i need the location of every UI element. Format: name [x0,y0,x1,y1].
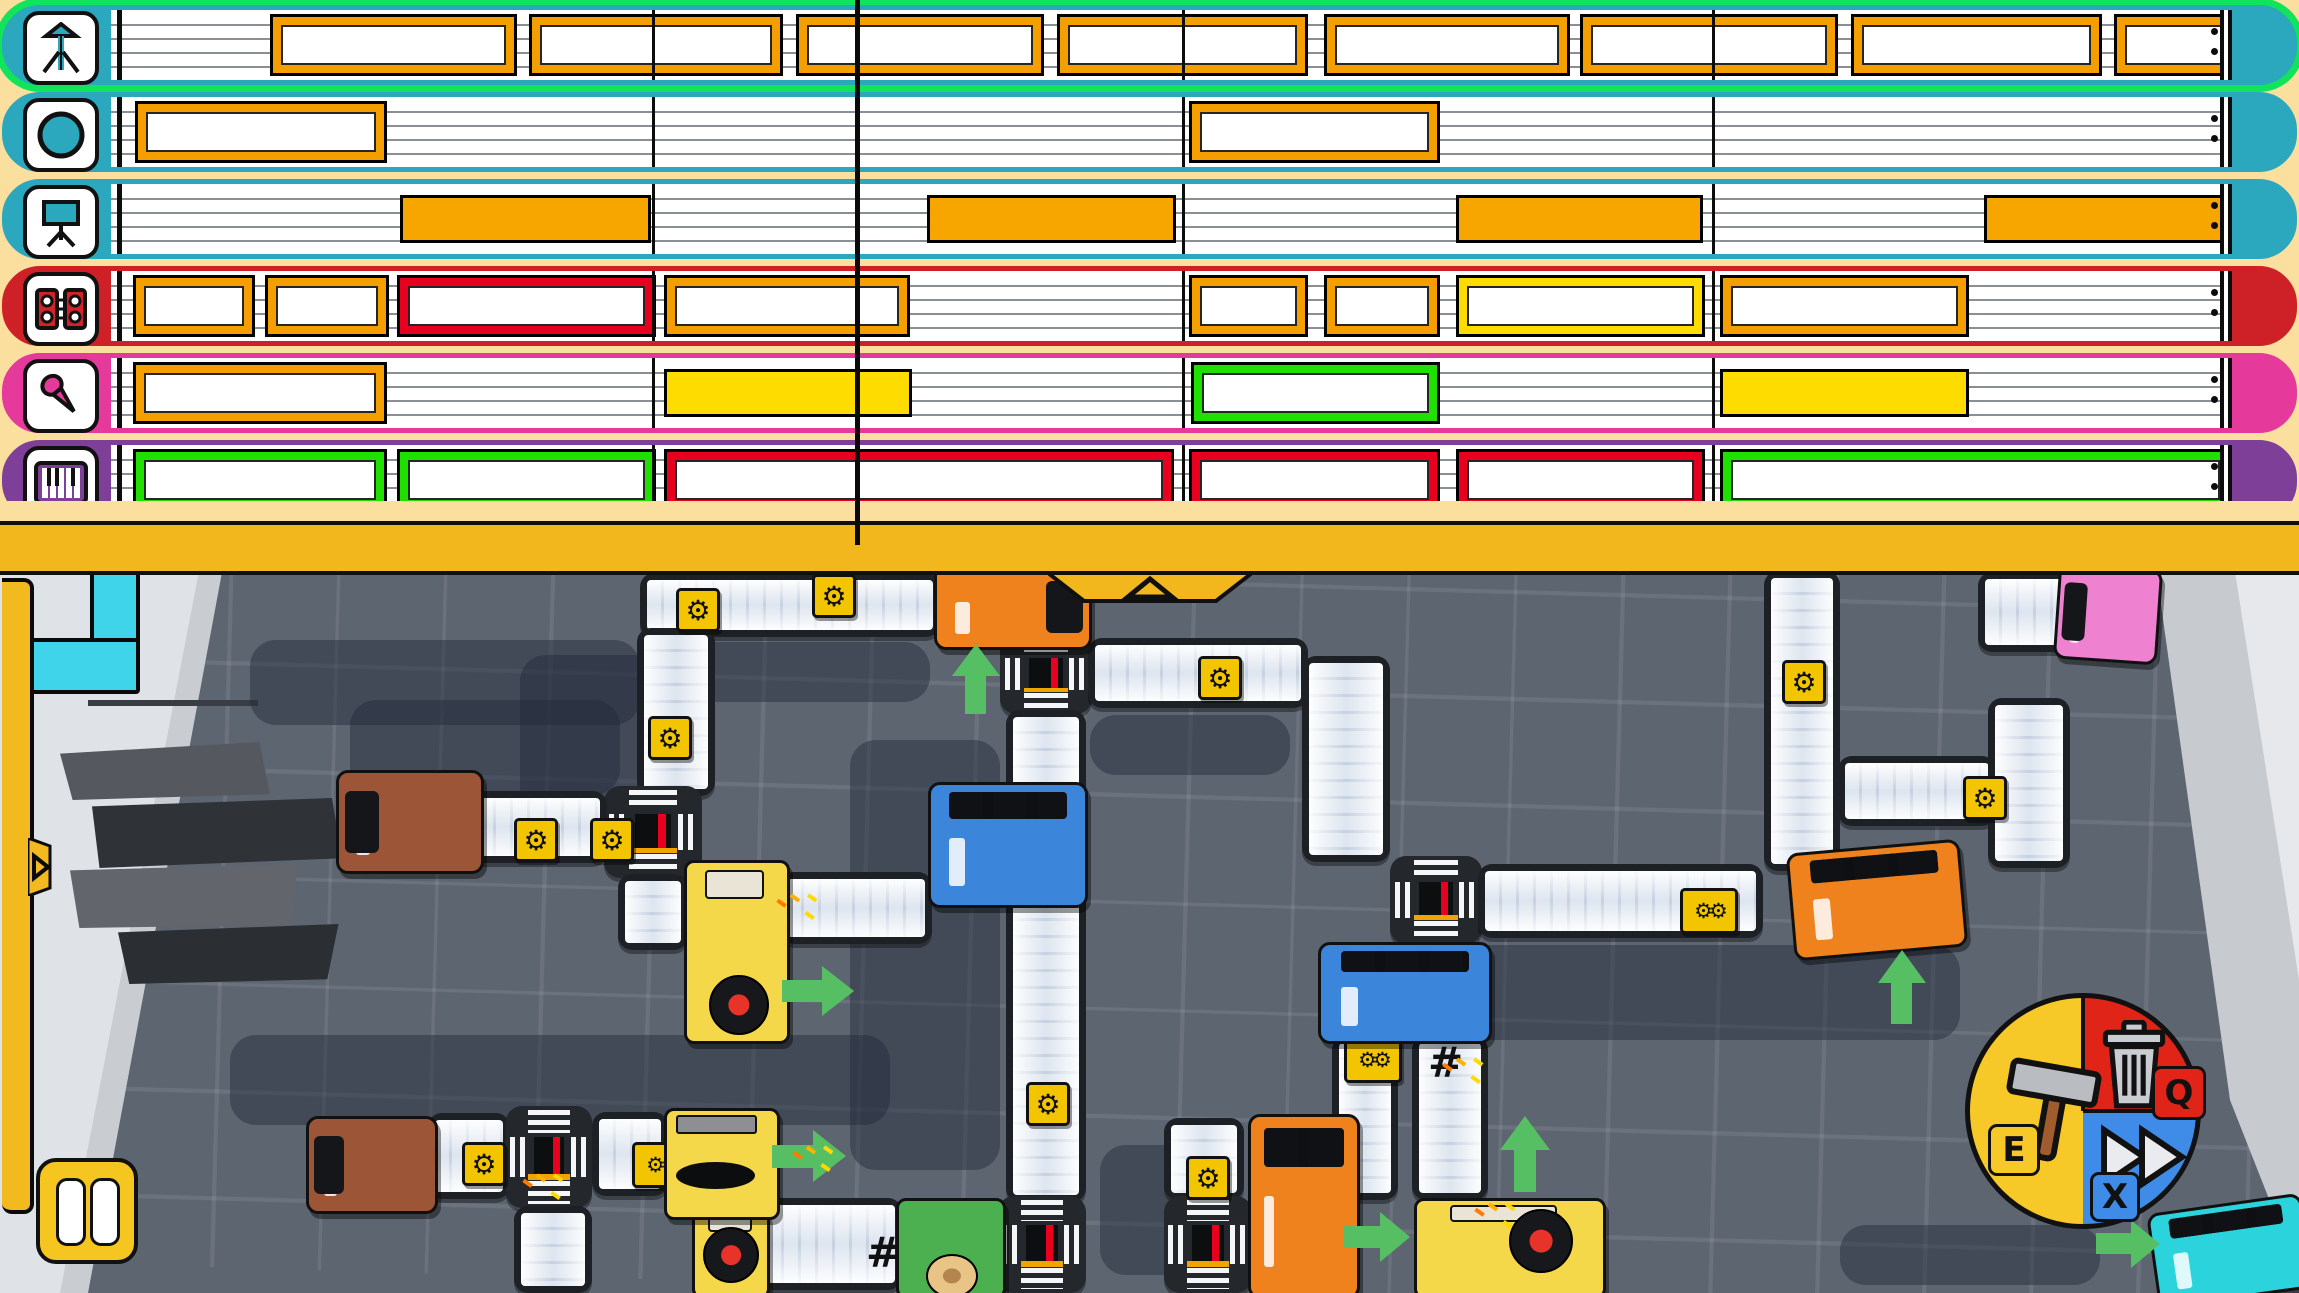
panel-gap [0,501,2299,521]
gear-icon: ⚙ [590,818,634,862]
crossing-stripes [1230,1225,1248,1264]
crossing-red-mark [1046,1225,1053,1264]
conveyor-belt[interactable] [1302,656,1390,862]
turntable-machine[interactable] [684,860,790,1044]
press-disc-icon [926,1254,978,1293]
note-block[interactable] [265,275,389,337]
note-block-inner [1335,25,1559,65]
note-block-inner [1335,286,1429,326]
machine-hopper [705,870,764,899]
key-badge-build: E [1988,1124,2040,1176]
note-block-inner [408,286,645,326]
brown-truck[interactable] [306,1116,438,1214]
direction-arrow-right-icon [782,966,854,1016]
truck-cab [345,791,379,854]
track-instrument-button[interactable] [23,11,99,85]
crossing-stripes [1187,1200,1229,1221]
crossing-red-mark [1212,1225,1219,1264]
track-row-stand[interactable] [2,179,2297,259]
crossing-yellow-mark [1021,1261,1063,1267]
stand-icon [36,196,86,248]
record-disc-icon [703,1227,759,1283]
track-end-cap [2232,358,2292,428]
note-block[interactable] [133,362,387,424]
crossing-red-mark [1441,882,1448,917]
belt-surface [644,635,708,789]
direction-arrow-up-icon [1500,1116,1550,1192]
rock-slab [92,798,342,868]
blue-truck[interactable] [928,782,1088,908]
note-block-inner [1862,25,2091,65]
crossing-stripes [629,854,676,874]
gear-icon: ⚙ [1782,660,1826,704]
key-badge-delete: Q [2152,1066,2206,1120]
track-end-cap [2232,184,2292,254]
game-screen: ⚙⚙⚙⚙⚙⚙⚙⚙⚙⚙⚙⚙⚙⚙⚙⚙⚙## [0,0,2299,1293]
direction-arrow-up-icon [952,644,1000,714]
keys-icon [34,460,88,506]
note-block[interactable] [135,101,387,163]
staff-line [111,139,2232,141]
repeat-dot [2211,115,2218,122]
note-block[interactable] [1984,195,2231,243]
note-block[interactable] [1456,195,1703,243]
measure-line [1712,184,1715,254]
note-block[interactable] [664,275,910,337]
crossing-stripes [1024,693,1068,711]
end-bar-lines [2220,184,2232,254]
note-block[interactable] [529,14,783,76]
turntable-machine[interactable] [692,1210,770,1293]
theremin-icon [36,22,86,74]
note-block[interactable] [1720,275,1969,337]
belt-surface [1771,578,1833,864]
direction-arrow-up-icon [1878,950,1926,1024]
crossing-stripes [510,1137,527,1178]
staff-line [111,125,2232,127]
note-block[interactable] [1189,101,1440,163]
gear-icon: ⚙ [514,818,558,862]
record-disc-icon [1509,1209,1573,1273]
note-block[interactable] [1189,275,1308,337]
belt-surface [787,879,925,937]
gear-icon: ⚙ [462,1142,506,1186]
note-block[interactable] [1456,275,1705,337]
gear-icon: ⚙ [1198,656,1242,700]
truck-stripe [2173,1251,2193,1289]
rock-slab [118,924,343,984]
note-block-inner [1200,460,1429,500]
track-row-mic[interactable] [2,353,2297,433]
speakers-icon [34,284,88,334]
measure-line [1712,271,1715,341]
note-block-inner [1200,112,1429,152]
measure-line [1182,358,1185,428]
belt-crossing[interactable] [506,1106,592,1208]
note-block[interactable] [1191,362,1440,424]
track-lane[interactable] [111,271,2232,341]
rock-slab [60,742,270,800]
end-bar-lines [2220,10,2232,80]
measure-line [652,358,655,428]
gear-icon: ⚙ [1186,1156,1230,1200]
gear-icon: ⚙ [676,588,720,632]
repeat-dot [2211,135,2218,142]
crossing-stripes [1005,658,1023,690]
brown-truck[interactable] [336,770,484,874]
note-block-inner [807,25,1033,65]
track-lane[interactable] [111,184,2232,254]
conveyor-belt[interactable] [1764,571,1840,871]
repeat-dot [2211,222,2218,229]
gear-icon: ⚙ [812,574,856,618]
truck-windows [1264,1128,1345,1167]
crossing-stripes [571,1137,588,1178]
note-block-inner [1731,286,1958,326]
gramophone-machine[interactable] [664,1108,780,1220]
note-block-inner [1591,25,1827,65]
orange-truck[interactable] [1248,1114,1360,1293]
measure-line [652,10,655,80]
track-instrument-button[interactable] [23,272,99,346]
repeat-dot [2211,289,2218,296]
note-block-inner [1467,286,1694,326]
belt-surface [521,1213,585,1286]
note-block[interactable] [927,195,1176,243]
track-instrument-button[interactable] [23,359,99,433]
sequencer-bottom-bar [0,521,2299,575]
truck-windows [1341,951,1469,972]
crossing-stripes [1414,860,1458,879]
repeat-dot [2211,396,2218,403]
note-block-inner [281,25,506,65]
double-gear-icon: ⚙⚙ [1680,888,1738,934]
track-row-theremin[interactable] [2,5,2297,85]
repeat-dot [2211,376,2218,383]
conveyor-belt[interactable] [780,872,932,944]
lane-start-line [117,97,122,167]
crossing-stripes [1021,1268,1063,1289]
measure-line [1182,184,1185,254]
belt-crossing[interactable] [1390,856,1482,944]
track-end-cap [2232,97,2292,167]
note-block[interactable] [1720,369,1969,417]
staff-line [111,153,2232,155]
note-block[interactable] [1324,275,1440,337]
end-bar-lines [2220,271,2232,341]
repeat-dot [2211,483,2218,490]
turntable-machine[interactable] [1414,1198,1606,1293]
repeat-dot [2211,309,2218,316]
truck-windows [949,792,1066,818]
note-block-inner [540,25,772,65]
track-row-pad[interactable] [2,92,2297,172]
note-block[interactable] [2114,14,2232,76]
truck-windows [2168,1204,2284,1239]
truck-stripe [1813,898,1833,940]
belt-surface [625,881,681,943]
staff-line [111,111,2232,113]
measure-line [652,184,655,254]
note-block[interactable] [397,275,656,337]
lane-start-line [117,184,122,254]
rock-ledge [88,700,258,706]
note-block-inner [144,286,244,326]
truck-windows [1809,850,1938,883]
crossing-red-mark [1051,658,1058,690]
repeat-dot [2211,48,2218,55]
note-block[interactable] [1851,14,2102,76]
truck-cab [2061,582,2088,641]
note-block-inner [144,373,376,413]
note-block-inner [1202,373,1429,413]
measure-line [1182,10,1185,80]
note-block[interactable] [796,14,1044,76]
crossing-red-mark [658,814,666,851]
note-block[interactable] [400,195,651,243]
horn-icon [676,1162,755,1190]
track-end-cap [2232,10,2292,80]
conveyor-belt[interactable] [637,628,715,796]
lane-start-line [117,271,122,341]
truck-stripe [1341,987,1358,1025]
measure-line [1712,10,1715,80]
note-block[interactable] [1580,14,1838,76]
orange-truck[interactable] [1786,839,1969,962]
lane-start-line [117,10,122,80]
track-lane[interactable] [111,10,2232,80]
belt-surface [1309,663,1383,855]
direction-arrow-right-icon [2096,1220,2160,1268]
side-panel-strip[interactable] [2,578,34,1214]
crossing-stripes [528,1110,569,1132]
measure-line [1712,97,1715,167]
measure-line [652,97,655,167]
crossing-red-mark [553,1137,560,1178]
conveyor-belt[interactable] [514,1206,592,1293]
note-block-inner [675,286,899,326]
side-panel-expand-arrow-icon[interactable] [28,838,62,896]
belt-crossing[interactable] [1164,1196,1252,1293]
track-end-cap [2232,271,2292,341]
direction-arrow-right-icon [772,1130,846,1182]
track-instrument-button[interactable] [23,185,99,259]
measure-line [652,271,655,341]
gear-icon: ⚙ [1963,776,2007,820]
note-block[interactable] [664,369,912,417]
press-machine[interactable] [896,1198,1006,1293]
mic-icon [35,370,87,422]
crossing-stripes [1168,1225,1186,1264]
key-badge-fast-forward: X [2090,1172,2140,1222]
conveyor-belt[interactable] [618,874,688,950]
shadow [1090,715,1290,775]
crossing-yellow-mark [1414,915,1458,920]
blue-truck[interactable] [1318,942,1492,1044]
end-bar-lines [2220,358,2232,428]
belt-surface [1985,579,2065,645]
note-block-inner [675,460,1163,500]
playhead-line[interactable] [855,0,860,545]
direction-arrow-right-icon [1344,1212,1410,1262]
measure-line [1182,97,1185,167]
crossing-yellow-mark [629,848,676,854]
pause-button[interactable] [36,1158,138,1264]
collapse-tab[interactable] [1048,573,1252,603]
note-block[interactable] [1324,14,1570,76]
crossing-stripes [1187,1268,1229,1289]
crossing-stripes [1064,1225,1082,1264]
track-lane[interactable] [111,97,2232,167]
gear-icon: ⚙ [648,716,692,760]
end-bar-lines [2220,97,2232,167]
measure-line [1182,271,1185,341]
crossing-stripes [629,790,676,810]
crossing-yellow-mark [1024,688,1068,693]
shadow [1840,1225,2100,1285]
note-block-inner [276,286,378,326]
track-lane[interactable] [111,358,2232,428]
note-block-inner [1200,286,1297,326]
track-row-speakers[interactable] [2,266,2297,346]
truck-stripe [1264,1196,1275,1268]
note-block-inner [408,460,645,500]
crossing-stripes [1459,882,1477,917]
pink-truck[interactable] [2053,562,2163,665]
rock-slab [70,864,305,928]
cyan-chute-icon [24,638,140,694]
note-block-inner [1467,460,1694,500]
crossing-stripes [528,1181,569,1203]
note-block-inner [146,112,376,152]
crossing-stripes [1069,658,1087,690]
machine-top [676,1115,757,1134]
measure-line [1712,358,1715,428]
pause-icon [90,1178,120,1246]
note-block[interactable] [270,14,517,76]
crossing-stripes [1021,1200,1063,1221]
crossing-stripes [1395,882,1413,917]
crossing-yellow-mark [528,1174,569,1180]
crossing-stripes [1414,921,1458,940]
note-block[interactable] [133,275,255,337]
pause-icon [56,1178,86,1246]
lane-start-line [117,358,122,428]
truck-cab [314,1136,344,1195]
note-block-inner [144,460,376,500]
truck-stripe [955,602,970,634]
gear-icon: ⚙ [1026,1082,1070,1126]
truck-stripe [949,838,964,886]
pad-icon [35,109,87,161]
crossing-stripes [678,814,698,851]
record-disc-icon [709,975,769,1035]
note-block-inner [1731,460,2220,500]
track-instrument-button[interactable] [23,98,99,172]
crossing-yellow-mark [1187,1261,1229,1267]
belt-crossing[interactable] [998,1196,1086,1293]
